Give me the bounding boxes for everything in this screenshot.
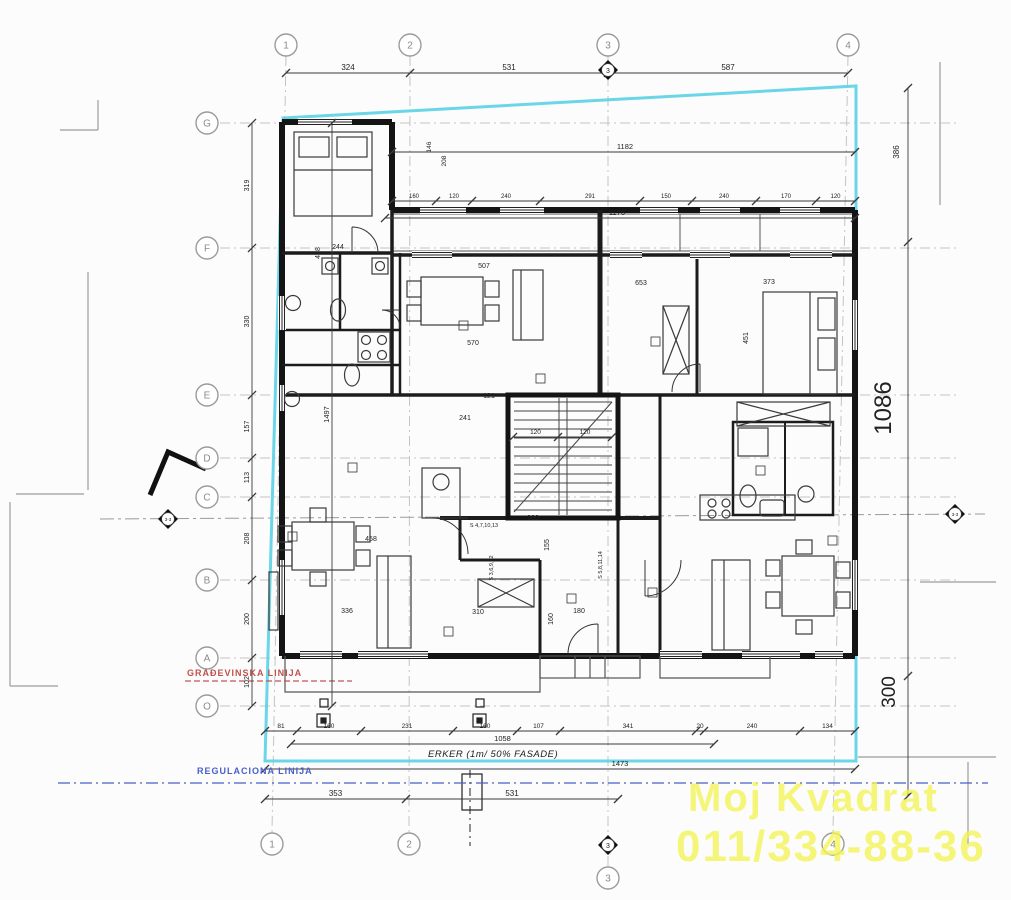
dim-label: 231: [402, 723, 413, 730]
annotation-label: 1086: [870, 381, 897, 434]
axis-bubble-left-G: G: [196, 112, 218, 134]
dim-chain-right-col: [904, 84, 912, 800]
axis-label: G: [203, 119, 211, 130]
annotation-label: 373: [763, 279, 775, 286]
section-marker-top: 3: [598, 60, 618, 80]
dim-label: 324: [341, 63, 355, 72]
section-label: 3-3: [952, 512, 959, 517]
dim-label: 160: [324, 723, 335, 730]
window: [851, 560, 859, 610]
window: [640, 206, 678, 214]
top-terrace: [392, 214, 855, 251]
wardrobe-corridor: [663, 306, 689, 374]
site-columns: [317, 699, 486, 846]
window: [300, 650, 342, 658]
axis-label: 4: [845, 41, 851, 52]
stairwell: [508, 395, 618, 518]
axis-label: 1: [283, 41, 289, 52]
axis-bubble-left-D: D: [196, 447, 218, 469]
room-label-boxes: [288, 321, 837, 636]
dim-label: 531: [505, 789, 519, 798]
watermark-line1: Moj Kvadrat: [688, 776, 939, 821]
axis-label: 2: [407, 41, 413, 52]
window: [278, 296, 286, 330]
axis-bubble-left-C: C: [196, 486, 218, 508]
floor-plan-drawing: 3245315871182160120240291150240170120117…: [0, 0, 1011, 900]
watermark-line2: 011/334-88-36: [676, 822, 986, 872]
window: [420, 206, 466, 214]
dim-label: 1473: [612, 759, 629, 768]
annotation-label: 458: [365, 536, 377, 543]
axis-bubble-left-O: O: [196, 695, 218, 717]
axis-label: 2: [406, 840, 412, 851]
axis-label: 3: [605, 41, 611, 52]
axis-bubble-top-1: 1: [275, 34, 297, 56]
annotation-label: 336: [341, 608, 353, 615]
dim-chain-top-main: 324531587: [282, 63, 852, 77]
section-marker-bottom: 3: [598, 835, 618, 855]
window: [690, 251, 730, 259]
parcel-boundary: [265, 86, 856, 761]
axis-bubble-left-E: E: [196, 384, 218, 406]
dim-label: 208: [244, 533, 251, 545]
interior-walls: [282, 210, 855, 654]
dim-chain-left-total: 1497: [322, 119, 336, 710]
dim-chain-bottom-blocks: 353531: [261, 789, 622, 803]
window: [700, 206, 740, 214]
dim-label: 200: [244, 613, 251, 625]
window: [500, 206, 544, 214]
annotation-label: 310: [472, 609, 484, 616]
bed-top-left: [294, 132, 372, 216]
dim-label: 1058: [494, 734, 511, 743]
dim-chain-top-small: 160120240291150240170120: [388, 194, 859, 205]
annotation-label: 146: [426, 141, 433, 152]
annotation-label: 451: [743, 332, 750, 344]
annotation-label: 160: [548, 613, 555, 625]
section-label: 3: [606, 68, 610, 75]
section-label: 3: [606, 843, 610, 850]
axis-label: D: [203, 454, 210, 465]
dim-label: 341: [623, 723, 634, 730]
dim-label: 353: [329, 789, 343, 798]
dim-label: 330: [244, 316, 251, 328]
dim-chain-bottom-1058: 1058: [287, 734, 718, 748]
section-marker-left: 3-3: [158, 509, 178, 529]
dim-label: 120: [580, 429, 591, 436]
dining-table-bottom-left: [278, 508, 370, 586]
annotation-label: 180: [573, 608, 585, 615]
axis-label: 3: [605, 874, 611, 885]
dim-label: 1497: [322, 406, 331, 423]
annotation-label: 653: [635, 280, 647, 287]
axis-bubble-left-F: F: [196, 237, 218, 259]
sofa-top: [513, 270, 543, 340]
axis-bubble-bottom-1: 1: [261, 833, 283, 855]
axis-label: C: [203, 493, 210, 504]
annotation-label: 300: [879, 676, 900, 708]
axis-label: 1: [269, 840, 275, 851]
section-marker-right: 3-3: [945, 504, 965, 524]
window: [790, 251, 832, 259]
axis-grid: [220, 56, 958, 866]
terraces: [285, 656, 770, 692]
axis-bubble-bottom-3: 3: [597, 867, 619, 889]
dim-label: 113: [244, 472, 251, 483]
dim-label: 107: [533, 723, 544, 730]
dim-label: 150: [661, 194, 672, 200]
window: [358, 650, 428, 658]
annotation-label: S 5,8,11,14: [598, 551, 604, 579]
dim-label: 160: [480, 723, 491, 730]
annotation-label: S 4,7,10,13: [470, 523, 498, 529]
annotation-label: 208: [441, 155, 448, 166]
dim-label: 1176: [609, 208, 625, 217]
dim-label: 1182: [617, 142, 633, 151]
annotation-label: S 3,6,9,12: [489, 555, 495, 580]
dim-label: 240: [501, 194, 512, 200]
annotation-label: 570: [467, 340, 479, 347]
window: [815, 650, 843, 658]
axis-bubble-left-B: B: [196, 569, 218, 591]
dim-label: 157: [244, 421, 251, 433]
regulation-line-label: REGULACIONA LINIJA: [197, 766, 313, 776]
annotation-label: 418: [315, 247, 322, 259]
annotation-label: 241: [459, 415, 471, 422]
annotation-label: 507: [478, 263, 490, 270]
section-label: 3-3: [165, 517, 172, 522]
window: [742, 650, 800, 658]
dim-label: 81: [277, 723, 285, 730]
annotation-label: 244: [332, 244, 344, 251]
dim-chain-left-axes: 319330157113208200102: [244, 119, 256, 710]
dim-label: 120: [449, 194, 460, 200]
erker-label: ERKER (1m/ 50% FASADE): [428, 749, 558, 760]
dim-chain-bottom-outer: 8116023116010734120240134: [261, 723, 859, 735]
dim-label: 20: [696, 723, 704, 730]
dim-label: 240: [747, 723, 758, 730]
bed-right: [763, 292, 837, 394]
axis-bubble-top-3: 3: [597, 34, 619, 56]
axis-label: E: [204, 391, 211, 402]
axis-label: F: [204, 244, 210, 255]
dim-label: 170: [781, 194, 792, 200]
dim-label: 240: [719, 194, 730, 200]
dim-label: 319: [244, 180, 251, 192]
dining-table-top: [407, 277, 499, 325]
windows: [278, 118, 859, 658]
annotation-label: 155: [544, 539, 551, 551]
wardrobe-lobby: [478, 579, 534, 607]
dim-label: 587: [721, 63, 735, 72]
dim-label: 120: [530, 429, 541, 436]
axis-label: B: [204, 576, 211, 587]
dim-label: 291: [585, 194, 596, 200]
annotation-label: 121: [483, 393, 495, 400]
dim-chain-top-1182: 1182: [388, 142, 859, 156]
sofa-bottom-right: [712, 560, 750, 650]
window: [298, 118, 352, 126]
dim-label: 134: [822, 723, 833, 730]
annotation-label: 386: [892, 145, 901, 159]
axis-label: O: [203, 702, 211, 713]
building-line-label: GRAĐEVINSKA LINIJA: [187, 668, 302, 678]
window: [610, 251, 642, 259]
dim-label: 160: [409, 194, 420, 200]
dim-chain-stair-inner: 120120: [509, 429, 616, 441]
axis-bubble-top-4: 4: [837, 34, 859, 56]
sofa-bottom-left: [377, 556, 411, 648]
window: [851, 300, 859, 350]
axis-label: A: [204, 654, 211, 665]
annotation-label: 360: [527, 515, 539, 522]
dim-label: 120: [830, 194, 841, 200]
floor-plan-screenshot: 3245315871182160120240291150240170120117…: [0, 0, 1011, 900]
axis-bubble-left-A: A: [196, 647, 218, 669]
axis-bubble-bottom-2: 2: [398, 833, 420, 855]
dim-label: 531: [502, 63, 516, 72]
window: [780, 206, 820, 214]
neighbor-outlines: [10, 62, 996, 844]
window: [278, 560, 286, 615]
axis-bubble-top-2: 2: [399, 34, 421, 56]
window: [412, 251, 452, 259]
window: [660, 650, 702, 658]
